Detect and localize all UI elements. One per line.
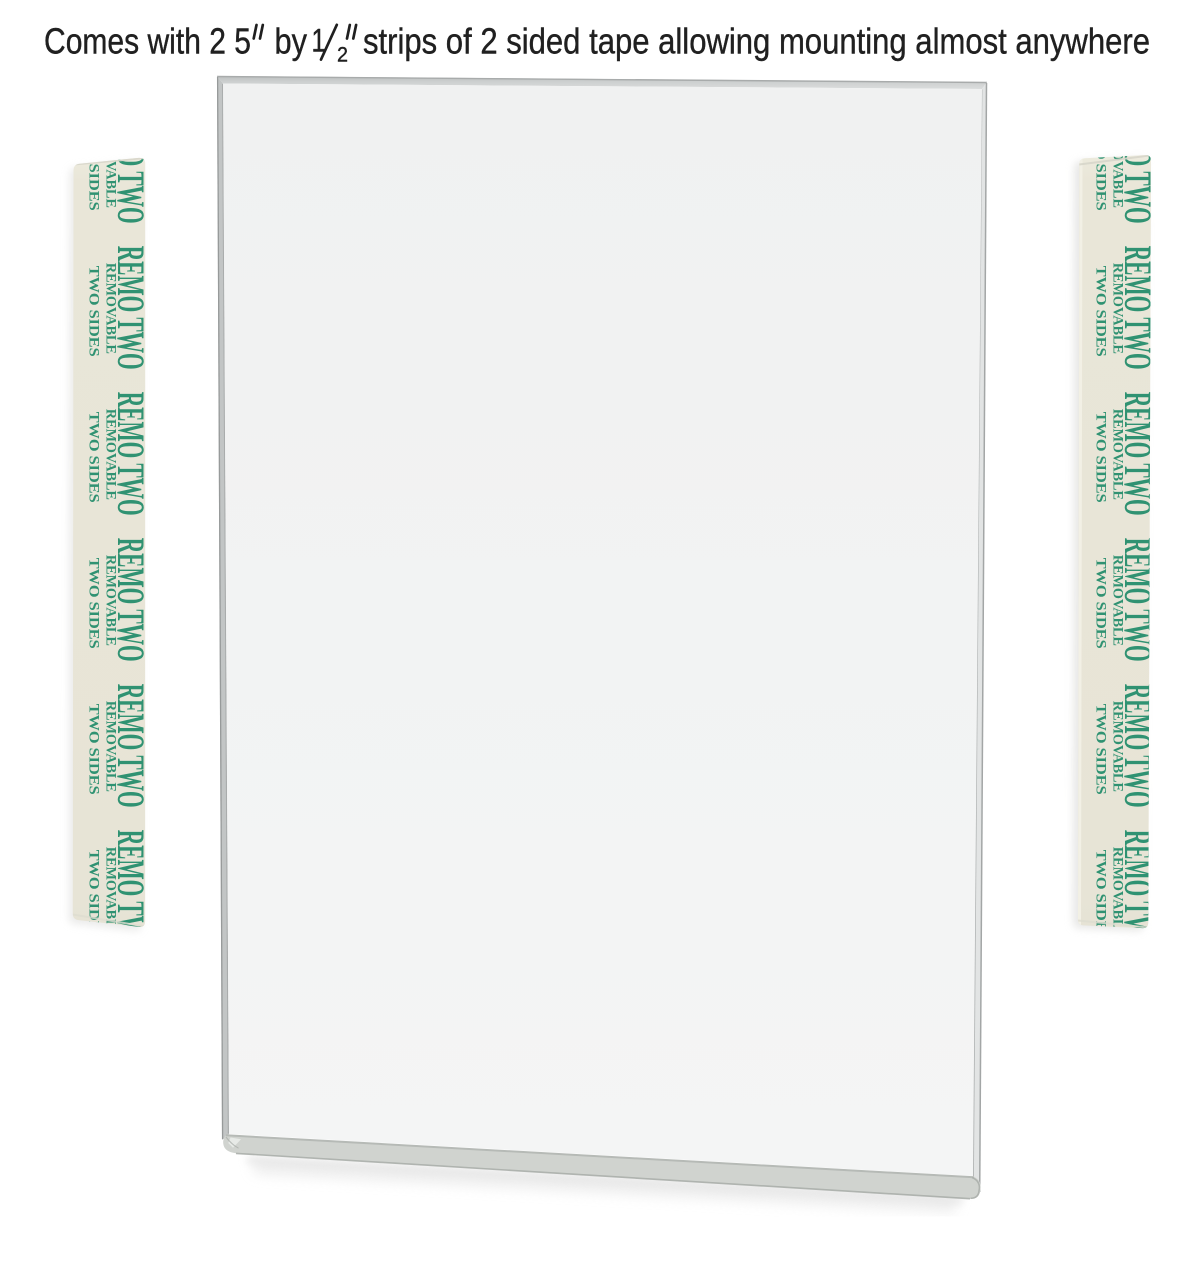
- svg-text:TWO SIDES: TWO SIDES: [86, 266, 102, 357]
- svg-text:TWO SIDES: TWO SIDES: [1093, 558, 1109, 649]
- svg-text:REMOVABLE: REMOVABLE: [1110, 117, 1126, 208]
- svg-text:REMOVABLE: REMOVABLE: [103, 263, 119, 354]
- svg-text:TWO SIDES: TWO SIDES: [86, 704, 102, 795]
- svg-text:REMOVABLE: REMOVABLE: [103, 701, 119, 792]
- svg-text:TWO SIDES: TWO SIDES: [86, 412, 102, 503]
- svg-text:REMOVABLE: REMOVABLE: [103, 555, 119, 646]
- svg-text:Comes with 2 5: Comes with 2 5: [44, 21, 251, 62]
- svg-text:TWO SIDES: TWO SIDES: [1093, 412, 1109, 503]
- svg-text:by: by: [275, 21, 308, 62]
- svg-text:TWO SIDES: TWO SIDES: [1093, 266, 1109, 357]
- svg-text:REMOVABLE: REMOVABLE: [1110, 263, 1126, 354]
- svg-text:REMOVABLE: REMOVABLE: [1110, 555, 1126, 646]
- svg-text:TWO SIDES: TWO SIDES: [86, 850, 102, 941]
- svg-text:TWO SIDES: TWO SIDES: [1093, 704, 1109, 795]
- svg-text:REMOVABLE: REMOVABLE: [103, 409, 119, 500]
- svg-text:2: 2: [337, 42, 348, 67]
- svg-text:TWO SIDES: TWO SIDES: [1093, 120, 1109, 211]
- svg-text:REMOVABLE: REMOVABLE: [1110, 409, 1126, 500]
- svg-text:TWO SIDES: TWO SIDES: [86, 120, 102, 211]
- svg-text:strips of 2 sided tape allowin: strips of 2 sided tape allowing mounting…: [363, 21, 1150, 62]
- svg-text:TWO SIDES: TWO SIDES: [86, 558, 102, 649]
- svg-text:REMOVABLE: REMOVABLE: [1110, 701, 1126, 792]
